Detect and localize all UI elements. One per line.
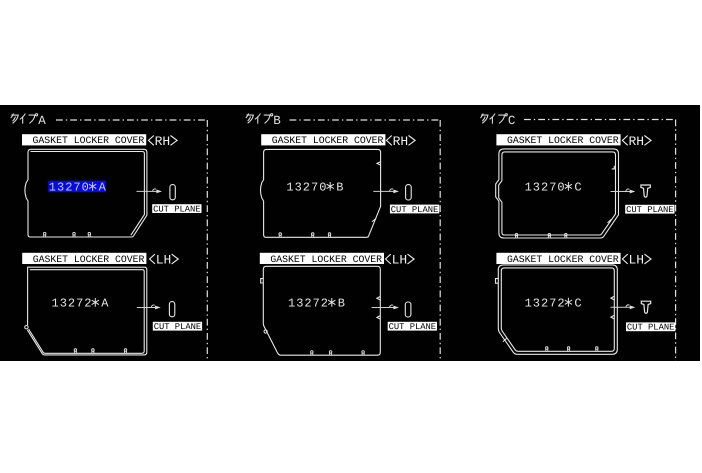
svg-text:B: B — [336, 181, 343, 195]
svg-text:13272: 13272 — [525, 296, 566, 310]
svg-text:GASKET LOCKER COVER: GASKET LOCKER COVER — [270, 254, 382, 265]
svg-text:RH: RH — [629, 134, 645, 149]
svg-text:CUT PLANE: CUT PLANE — [627, 323, 675, 333]
svg-text:B: B — [273, 114, 281, 128]
svg-text:CUT PLANE: CUT PLANE — [389, 322, 437, 332]
svg-text:CUT PLANE: CUT PLANE — [626, 205, 674, 215]
svg-text:A: A — [38, 114, 46, 128]
svg-text:13270: 13270 — [525, 181, 566, 195]
svg-text:CUT PLANE: CUT PLANE — [154, 322, 202, 332]
svg-text:RH: RH — [393, 134, 409, 149]
svg-text:GASKET LOCKER COVER: GASKET LOCKER COVER — [33, 135, 145, 146]
svg-text:GASKET LOCKER COVER: GASKET LOCKER COVER — [507, 135, 619, 146]
svg-text:LH: LH — [156, 253, 172, 268]
svg-text:LH: LH — [392, 253, 408, 268]
svg-text:13270: 13270 — [49, 181, 90, 195]
svg-text:GASKET LOCKER COVER: GASKET LOCKER COVER — [33, 254, 145, 265]
svg-text:GASKET LOCKER COVER: GASKET LOCKER COVER — [507, 254, 619, 265]
svg-text:A: A — [99, 181, 107, 195]
svg-text:C: C — [508, 114, 516, 128]
svg-text:LH: LH — [629, 253, 645, 268]
svg-text:C: C — [574, 181, 581, 195]
svg-text:13270: 13270 — [286, 181, 327, 195]
svg-text:CUT PLANE: CUT PLANE — [153, 204, 201, 214]
svg-text:C: C — [574, 296, 581, 310]
svg-text:CUT PLANE: CUT PLANE — [391, 205, 439, 215]
svg-text:13272: 13272 — [52, 297, 93, 311]
svg-text:A: A — [101, 297, 109, 311]
svg-text:13272: 13272 — [288, 297, 329, 311]
svg-text:RH: RH — [155, 134, 171, 149]
svg-text:B: B — [338, 297, 345, 311]
svg-text:GASKET LOCKER COVER: GASKET LOCKER COVER — [272, 135, 384, 146]
